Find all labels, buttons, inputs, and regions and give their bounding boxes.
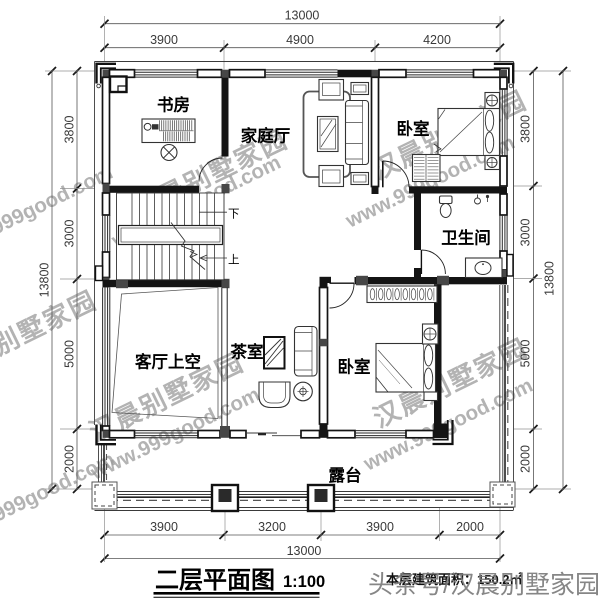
svg-text:茶室: 茶室 (231, 342, 264, 362)
svg-text:书房: 书房 (157, 95, 190, 115)
svg-text:2000: 2000 (456, 520, 484, 534)
svg-text:3000: 3000 (519, 219, 533, 247)
svg-text:5000: 5000 (519, 340, 533, 368)
svg-text:1:100: 1:100 (283, 573, 325, 591)
svg-text:卧室: 卧室 (397, 119, 430, 139)
svg-text:头条号/汉晨别墅家园: 头条号/汉晨别墅家园 (368, 571, 600, 599)
svg-text:下: 下 (228, 209, 240, 221)
svg-text:露台: 露台 (329, 465, 362, 485)
svg-text:13800: 13800 (543, 261, 557, 296)
svg-text:上: 上 (228, 254, 240, 267)
svg-text:4200: 4200 (423, 33, 451, 47)
svg-text:13000: 13000 (287, 544, 322, 558)
svg-text:13000: 13000 (285, 9, 320, 23)
svg-text:卫生间: 卫生间 (441, 228, 491, 248)
svg-text:3900: 3900 (150, 33, 178, 47)
svg-text:4900: 4900 (286, 33, 314, 47)
svg-text:二层平面图: 二层平面图 (155, 567, 275, 594)
svg-text:3800: 3800 (63, 116, 77, 144)
svg-text:3900: 3900 (150, 520, 178, 534)
svg-text:5000: 5000 (63, 340, 77, 368)
svg-text:3900: 3900 (366, 520, 394, 534)
svg-text:3800: 3800 (519, 115, 533, 143)
svg-text:家庭厅: 家庭厅 (241, 126, 291, 146)
svg-text:卧室: 卧室 (338, 357, 371, 377)
svg-text:2000: 2000 (63, 445, 77, 473)
svg-text:3000: 3000 (63, 220, 77, 248)
svg-text:客厅上空: 客厅上空 (134, 352, 201, 372)
svg-text:3200: 3200 (258, 520, 286, 534)
svg-text:13800: 13800 (38, 263, 52, 298)
svg-text:2000: 2000 (519, 445, 533, 473)
